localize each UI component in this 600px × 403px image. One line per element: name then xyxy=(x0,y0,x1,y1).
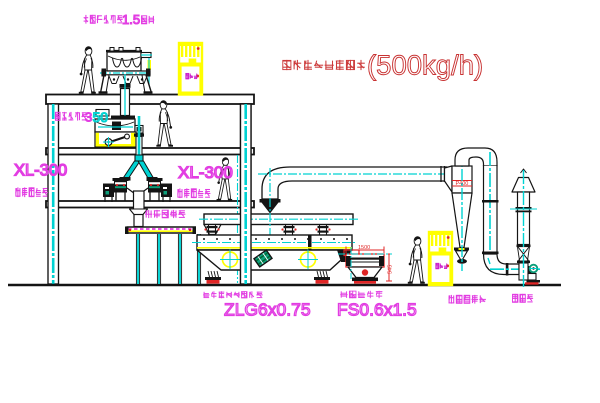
svg-text:(500kg/h): (500kg/h) xyxy=(367,50,483,81)
svg-text:3: 3 xyxy=(85,110,92,125)
svg-text:1.5: 1.5 xyxy=(122,12,140,27)
svg-text:XL-300: XL-300 xyxy=(14,162,67,180)
svg-text:1500: 1500 xyxy=(358,245,370,251)
svg-text:ZLG6x0.75: ZLG6x0.75 xyxy=(224,300,311,320)
svg-text:545: 545 xyxy=(388,265,394,274)
svg-text:XL-300: XL-300 xyxy=(178,163,233,182)
svg-text:50: 50 xyxy=(93,109,109,125)
svg-text:FS0.6x1.5: FS0.6x1.5 xyxy=(337,300,417,320)
